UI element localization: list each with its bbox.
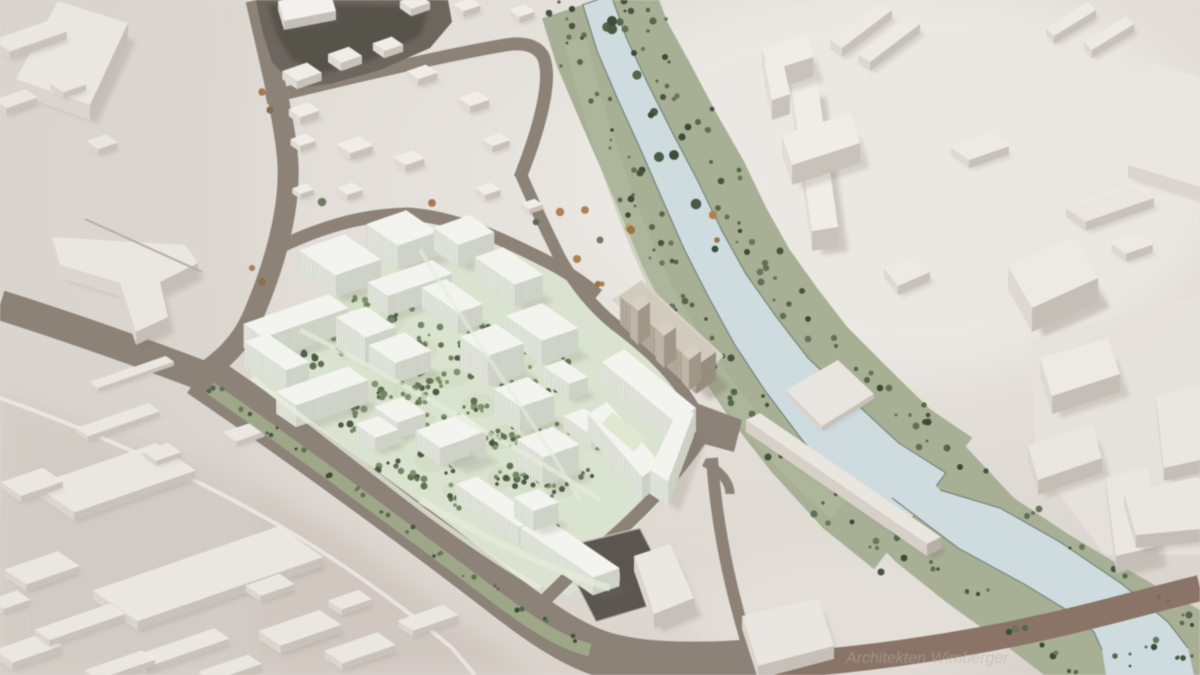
svg-text:Architekten Wimberger: Architekten Wimberger xyxy=(845,650,1009,667)
